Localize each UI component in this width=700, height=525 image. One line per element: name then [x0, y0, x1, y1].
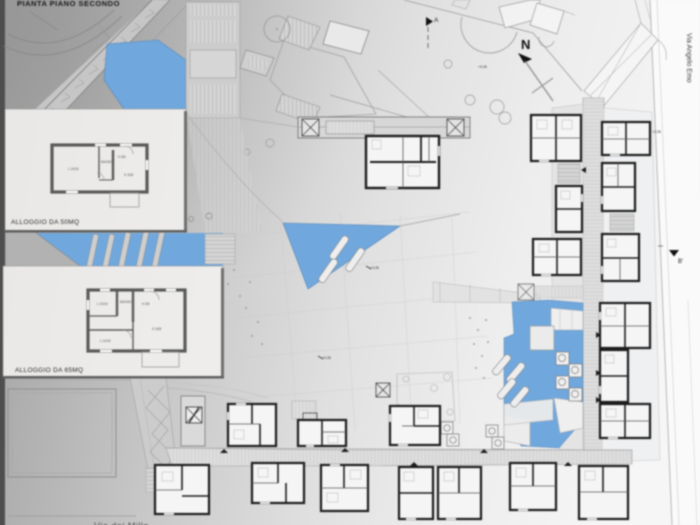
svg-text:+3.05: +3.05 [652, 130, 661, 134]
svg-text:S 16/8: S 16/8 [124, 173, 133, 177]
svg-text:N: N [521, 37, 530, 52]
svg-text:+3.05: +3.05 [370, 266, 379, 270]
svg-text:BAGNO: BAGNO [120, 300, 132, 304]
svg-text:A: A [434, 17, 439, 24]
svg-text:L 14/16: L 14/16 [97, 302, 108, 306]
svg-text:ALLOGGIO DA 50MQ: ALLOGGIO DA 50MQ [11, 219, 79, 226]
svg-text:+3.05: +3.05 [322, 356, 331, 360]
svg-text:K 6/8: K 6/8 [142, 302, 150, 306]
svg-text:S 16/8: S 16/8 [152, 327, 161, 331]
svg-text:Via dei Mille: Via dei Mille [94, 521, 149, 525]
svg-text:ALLOGGIO DA 65MQ: ALLOGGIO DA 65MQ [15, 367, 83, 374]
svg-text:Via Angelo Emo: Via Angelo Emo [685, 33, 692, 83]
svg-text:L 14/16: L 14/16 [68, 167, 79, 171]
svg-text:PIANTA PIANO SECONDO: PIANTA PIANO SECONDO [17, 0, 120, 8]
svg-text:L 14/16: L 14/16 [100, 339, 111, 343]
svg-text:+3.05: +3.05 [478, 65, 487, 69]
svg-text:BAGNO: BAGNO [101, 160, 113, 164]
svg-text:B': B' [678, 259, 683, 265]
svg-text:K 6/8: K 6/8 [118, 155, 126, 159]
